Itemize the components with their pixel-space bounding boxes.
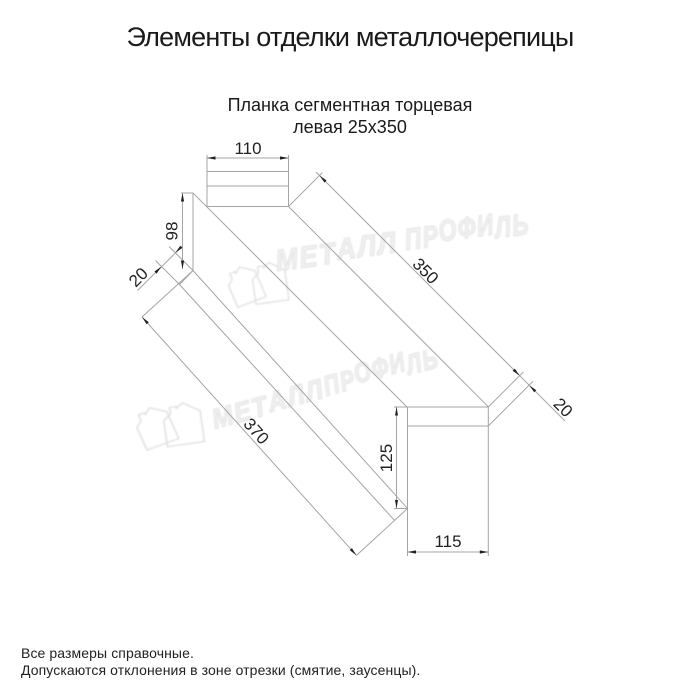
svg-text:110: 110 [234,139,261,158]
svg-text:350: 350 [409,254,442,287]
svg-text:ПРОФИЛЬ: ПРОФИЛЬ [402,203,532,257]
svg-text:20: 20 [125,264,152,291]
svg-text:ПРОФИЛЬ: ПРОФИЛЬ [319,338,443,404]
svg-text:125: 125 [377,444,396,472]
svg-text:МЕТАЛЛ: МЕТАЛЛ [273,226,400,279]
svg-text:115: 115 [434,532,461,551]
svg-text:20: 20 [549,394,576,421]
svg-text:98: 98 [163,222,182,241]
